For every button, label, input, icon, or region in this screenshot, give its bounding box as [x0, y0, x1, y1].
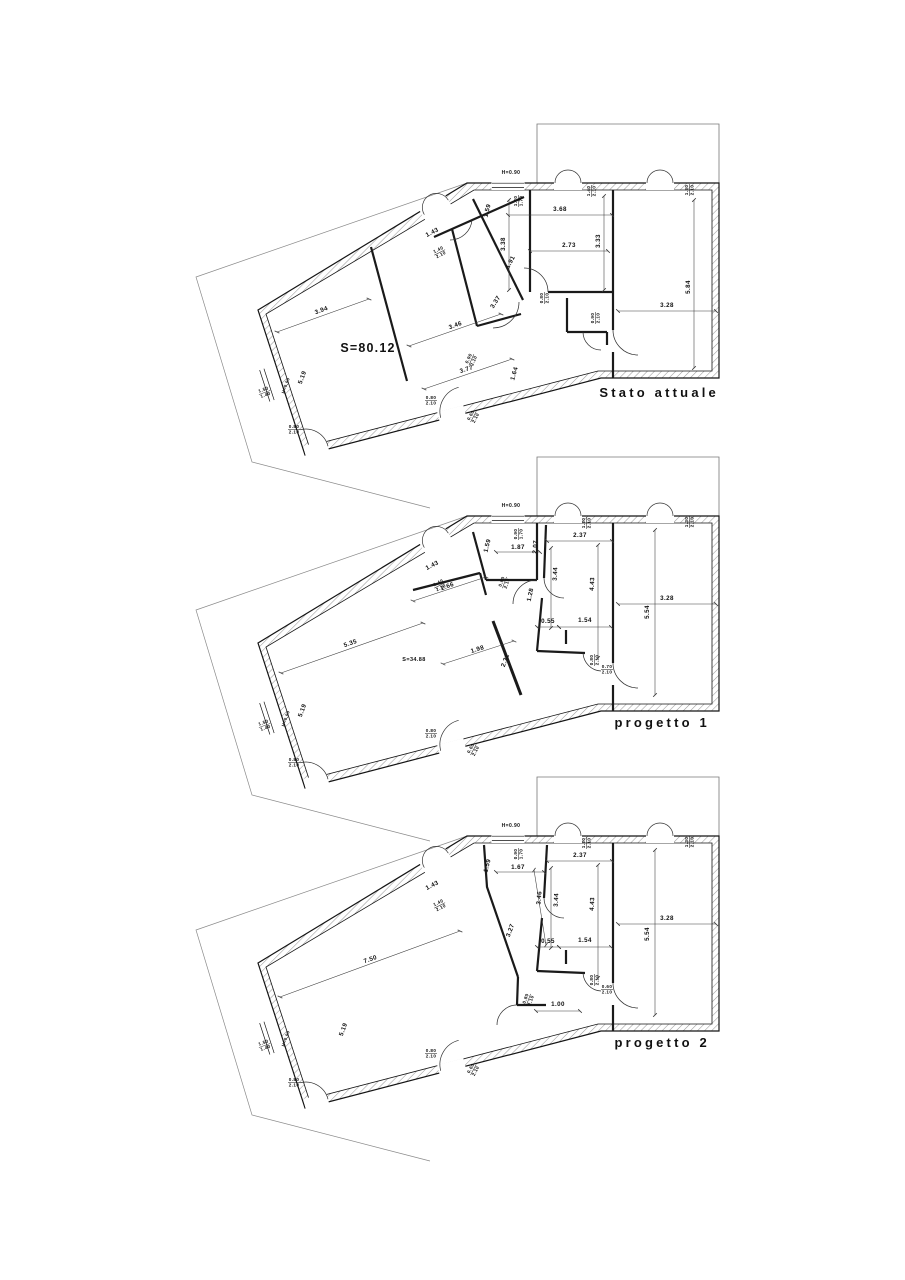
svg-text:1.59: 1.59 — [482, 538, 492, 553]
dimension-label: 1.00 — [551, 1001, 565, 1008]
dimension-label: 1.402.10 — [432, 245, 448, 260]
svg-text:1.302.10: 1.302.10 — [684, 517, 695, 528]
svg-text:1.64: 1.64 — [509, 366, 520, 381]
dimension-label: 3.38 — [500, 237, 507, 251]
dimension-label: 0.802.10 — [425, 395, 437, 406]
dimension-label: 1.43 — [425, 879, 440, 892]
svg-text:1.59: 1.59 — [482, 203, 492, 218]
plan-title: Stato attuale — [599, 385, 719, 400]
dimension-label: 5.19 — [338, 1022, 349, 1037]
dimension-label: 3.28 — [660, 595, 674, 602]
svg-text:3.94: 3.94 — [314, 305, 329, 316]
svg-text:3.46: 3.46 — [535, 891, 543, 905]
dimension-label: 1.302.10 — [684, 184, 695, 196]
dimension-label: 0.802.10 — [288, 757, 300, 768]
interior-walls — [484, 843, 613, 1031]
dimension-label: 5.19 — [297, 370, 308, 385]
svg-text:2.73: 2.73 — [562, 242, 576, 249]
dimension-label: 3.27 — [505, 923, 516, 938]
dimension-label: 1.67 — [511, 864, 525, 871]
svg-text:1.402.10: 1.402.10 — [432, 898, 446, 912]
dimension-label: 1.98 — [470, 644, 485, 655]
dimension-label: 0.802.10 — [497, 575, 511, 590]
svg-text:1.43: 1.43 — [425, 879, 440, 892]
dimension-line — [281, 623, 423, 673]
dimension-label: 3.33 — [595, 234, 602, 248]
svg-text:0.902.10: 0.902.10 — [464, 353, 478, 367]
dimension-label: 1.43 — [425, 559, 440, 572]
dimension-label: 5.54 — [644, 927, 651, 941]
svg-text:3.27: 3.27 — [505, 923, 516, 938]
svg-text:3.68: 3.68 — [553, 206, 567, 213]
dimension-label: 1.402.10 — [586, 185, 597, 197]
svg-text:1.00: 1.00 — [551, 1001, 565, 1008]
plan-title: progetto 2 — [614, 1035, 710, 1050]
svg-text:7.50: 7.50 — [363, 954, 378, 965]
svg-text:1.201.70: 1.201.70 — [513, 196, 524, 207]
dimension-label: 0.902.10 — [464, 352, 479, 367]
svg-text:1.402.10: 1.402.10 — [586, 186, 597, 197]
dimension-label: H=0.90 — [502, 503, 521, 509]
svg-text:3.28: 3.28 — [660, 302, 674, 309]
svg-text:1.87: 1.87 — [511, 544, 525, 551]
dimension-label: 1.302.10 — [684, 516, 695, 528]
dimension-label: 5.84 — [685, 280, 692, 294]
dimension-label: 7.50 — [363, 954, 378, 965]
svg-text:3.33: 3.33 — [595, 234, 602, 248]
svg-text:0.901.70: 0.901.70 — [513, 849, 524, 860]
dimension-label: 0.901.70 — [513, 528, 524, 540]
svg-text:0.802.10: 0.802.10 — [589, 655, 600, 666]
dimension-label: 0.602.10 — [601, 984, 613, 995]
dimension-label: 3.28 — [660, 915, 674, 922]
dimension-line — [277, 299, 369, 332]
svg-text:5.54: 5.54 — [644, 605, 651, 619]
dimension-label: 2.07 — [532, 540, 540, 554]
dimension-label: 3.44 — [553, 893, 561, 907]
plan-progetto-1: H=0.900.901.701.202.101.302.101.591.872.… — [196, 457, 719, 841]
svg-text:0.902.10: 0.902.10 — [590, 313, 601, 324]
dimension-label: 2.37 — [573, 532, 587, 539]
svg-text:0.802.10: 0.802.10 — [426, 395, 437, 406]
svg-text:4.43: 4.43 — [589, 577, 597, 591]
plan-stato-attuale: H=0.901.201.701.402.101.302.101.593.683.… — [196, 124, 719, 508]
dimension-label: 3.68 — [553, 206, 567, 213]
dimension-label: H=0.90 — [502, 170, 521, 176]
svg-text:0.702.10: 0.702.10 — [602, 664, 613, 675]
dimension-label: 0.802.10 — [288, 1077, 300, 1088]
svg-text:2.37: 2.37 — [573, 852, 587, 859]
dimension-label: 1.59 — [482, 538, 492, 553]
svg-text:0.901.70: 0.901.70 — [513, 529, 524, 540]
dimension-label: 0.802.10 — [539, 292, 550, 304]
dimension-label: 1.202.10 — [581, 837, 592, 849]
svg-text:1.202.10: 1.202.10 — [581, 518, 592, 529]
dimension-label: 1.201.70 — [513, 195, 524, 207]
svg-text:1.302.10: 1.302.10 — [684, 185, 695, 196]
dimension-line — [409, 314, 501, 346]
svg-text:H=0.90: H=0.90 — [502, 503, 521, 509]
plan-progetto-2: H=0.900.901.701.202.101.302.101.591.672.… — [196, 777, 719, 1161]
dimension-label: 5.19 — [297, 703, 308, 718]
svg-text:1.43: 1.43 — [425, 226, 440, 239]
dimension-label: 0.802.10 — [589, 974, 600, 986]
dimension-label: 4.43 — [589, 577, 597, 591]
svg-text:5.19: 5.19 — [338, 1022, 349, 1037]
svg-text:1.54: 1.54 — [578, 617, 592, 624]
dimension-label: 1.91 — [504, 254, 517, 269]
svg-text:H=0.90: H=0.90 — [502, 823, 521, 829]
dimension-label: 1.64 — [509, 366, 520, 381]
dimension-tick — [512, 640, 517, 642]
dimension-label: 3.28 — [660, 302, 674, 309]
dimension-label: 1.402.10 — [432, 898, 448, 913]
svg-text:S=80.12: S=80.12 — [340, 341, 395, 355]
svg-text:0.802.10: 0.802.10 — [539, 293, 550, 304]
svg-text:0.802.10: 0.802.10 — [289, 1077, 300, 1088]
door-swings — [450, 220, 638, 355]
svg-text:S=34.88: S=34.88 — [402, 657, 425, 663]
svg-text:1.402.10: 1.402.10 — [432, 245, 446, 259]
dimension-label: 0.802.10 — [425, 1048, 437, 1059]
dimension-label: H=0.90 — [502, 823, 521, 829]
svg-text:0.802.10: 0.802.10 — [497, 576, 511, 590]
dimension-label: 3.46 — [535, 891, 543, 905]
floorplan-sheet: H=0.901.201.701.402.101.302.101.593.683.… — [0, 0, 905, 1280]
svg-text:0.802.10: 0.802.10 — [289, 757, 300, 768]
svg-text:5.35: 5.35 — [343, 638, 358, 649]
svg-text:3.38: 3.38 — [500, 237, 507, 251]
svg-text:1.202.10: 1.202.10 — [581, 838, 592, 849]
svg-text:0.55: 0.55 — [541, 938, 555, 945]
svg-text:1.28: 1.28 — [526, 587, 536, 602]
svg-text:3.44: 3.44 — [553, 893, 561, 907]
svg-text:0.802.10: 0.802.10 — [589, 975, 600, 986]
svg-text:0.602.10: 0.602.10 — [602, 984, 613, 995]
dimension-label: 3.44 — [552, 567, 560, 581]
dimension-label: S=80.12 — [340, 341, 395, 355]
dimension-label: 1.43 — [425, 226, 440, 239]
svg-text:3.44: 3.44 — [552, 567, 560, 581]
dimension-label: 0.802.10 — [288, 424, 300, 435]
svg-text:H=0.90: H=0.90 — [502, 170, 521, 176]
svg-text:3.28: 3.28 — [660, 595, 674, 602]
dimension-label: 1.202.10 — [581, 517, 592, 529]
svg-text:2.37: 2.37 — [573, 532, 587, 539]
svg-text:2.07: 2.07 — [532, 540, 540, 554]
dimension-label: S=34.88 — [402, 657, 425, 663]
svg-text:1.302.10: 1.302.10 — [684, 837, 695, 848]
dimension-label: 0.55 — [541, 618, 555, 625]
svg-text:3.37: 3.37 — [489, 294, 502, 309]
dimension-label: 3.94 — [314, 305, 329, 316]
dimension-label: 5.54 — [644, 605, 651, 619]
dimension-label: 0.802.10 — [425, 728, 437, 739]
svg-text:0.55: 0.55 — [541, 618, 555, 625]
dimension-label: 2.37 — [573, 852, 587, 859]
svg-text:1.67: 1.67 — [511, 864, 525, 871]
svg-text:3.28: 3.28 — [660, 915, 674, 922]
svg-text:5.19: 5.19 — [297, 370, 308, 385]
svg-text:0.802.10: 0.802.10 — [426, 1048, 437, 1059]
dimension-label: 1.54 — [578, 617, 592, 624]
svg-text:0.802.10: 0.802.10 — [426, 728, 437, 739]
svg-text:5.84: 5.84 — [685, 280, 692, 294]
dimension-label: 4.43 — [589, 897, 597, 911]
dimension-label: 0.902.10 — [590, 312, 601, 324]
svg-text:1.91: 1.91 — [504, 254, 517, 269]
svg-text:1.43: 1.43 — [425, 559, 440, 572]
dimension-label: 0.702.10 — [601, 664, 613, 675]
svg-text:0.802.10: 0.802.10 — [289, 424, 300, 435]
dimension-label: 1.87 — [511, 544, 525, 551]
plans-drawing: H=0.901.201.701.402.101.302.101.593.683.… — [0, 0, 905, 1280]
dimension-label: 1.28 — [526, 587, 536, 602]
dimension-label: 3.37 — [489, 294, 502, 309]
svg-text:5.19: 5.19 — [297, 703, 308, 718]
svg-text:4.43: 4.43 — [589, 897, 597, 911]
svg-text:1.54: 1.54 — [578, 937, 592, 944]
dimension-label: 1.59 — [482, 203, 492, 218]
dimension-label: 1.302.10 — [684, 836, 695, 848]
dimension-label: 2.73 — [562, 242, 576, 249]
dimension-label: 0.802.10 — [589, 654, 600, 666]
dimension-label: 0.55 — [541, 938, 555, 945]
svg-text:5.54: 5.54 — [644, 927, 651, 941]
dimension-label: 5.35 — [343, 638, 358, 649]
dimension-label: 0.901.70 — [513, 848, 524, 860]
dimension-tick — [441, 663, 446, 665]
dimension-label: 1.54 — [578, 937, 592, 944]
svg-text:1.98: 1.98 — [470, 644, 485, 655]
plan-title: progetto 1 — [614, 715, 710, 730]
